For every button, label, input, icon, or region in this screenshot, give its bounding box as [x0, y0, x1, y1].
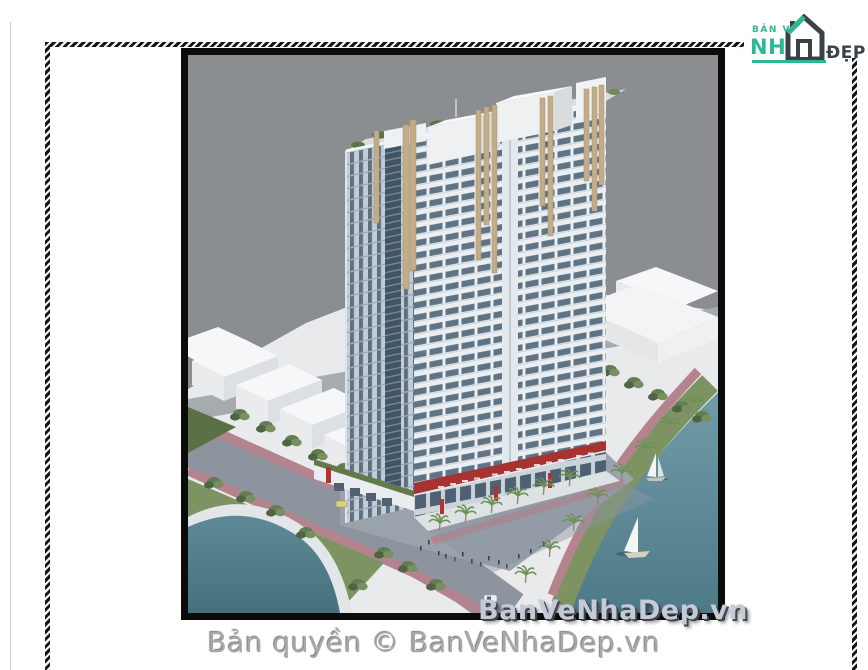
curtain-wall	[385, 142, 401, 503]
hatch-border-left	[45, 42, 50, 670]
house-icon	[782, 14, 826, 64]
page-edge-line	[10, 22, 11, 670]
hatch-border-right	[852, 58, 857, 670]
logo-word-right: ĐẸP	[826, 43, 866, 63]
copyright-caption: Bản quyền © BanVeNhaDep.vn	[0, 626, 868, 659]
logo-word-left: NH	[750, 35, 786, 59]
render-scene	[188, 55, 718, 613]
towers	[314, 77, 654, 575]
hatch-border-top	[45, 42, 744, 47]
brand-logo: BẢN VẼ NH ĐẸP	[744, 12, 862, 66]
page: BẢN VẼ NH ĐẸP	[0, 0, 868, 670]
logo-underline	[752, 60, 826, 63]
render-image	[181, 48, 725, 620]
watermark-overlay: BanVeNhaDep.vn	[478, 595, 748, 626]
